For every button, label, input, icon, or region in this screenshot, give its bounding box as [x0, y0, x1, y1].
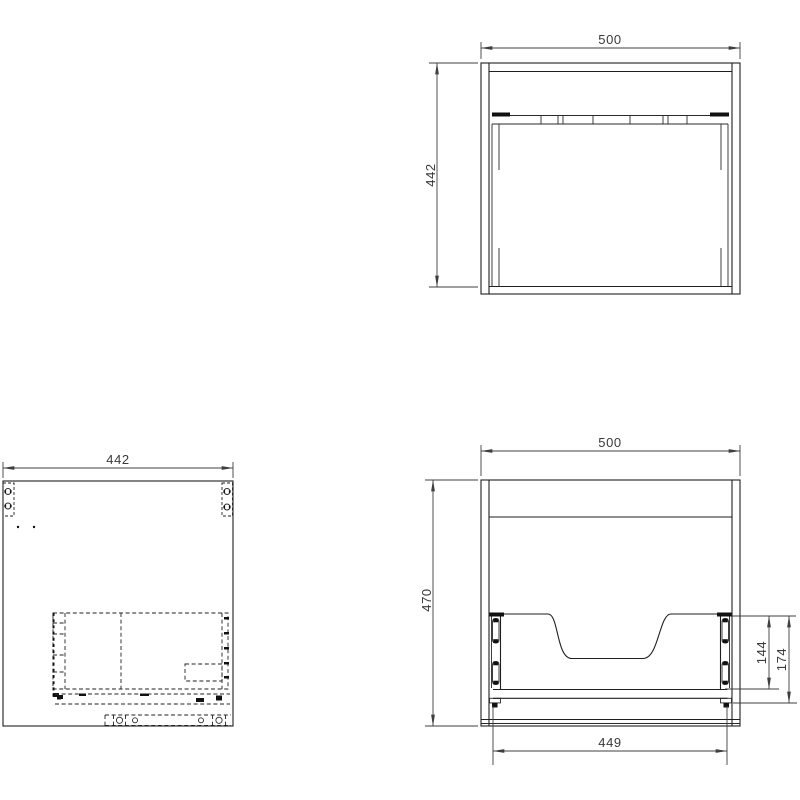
- side-view: 442: [3, 452, 233, 726]
- side-view-depth-label: 442: [106, 452, 130, 467]
- rear-view-height-dimension: 470: [419, 480, 478, 726]
- top-view-carcass: [481, 63, 740, 294]
- rail-end-cap-left: [492, 113, 510, 117]
- pilot-hole-dot: [17, 526, 19, 528]
- top-view-width-dimension: 500: [481, 32, 740, 59]
- rail-end-cap-right: [710, 113, 729, 117]
- drawer-width-label: 449: [598, 735, 622, 750]
- drawer-bottom-rail: [493, 690, 728, 699]
- wall-bracket-front: [3, 483, 14, 516]
- hidden-screw-strip: [105, 715, 231, 726]
- rear-view: 500 470: [419, 435, 797, 765]
- top-view-depth-label: 442: [423, 163, 438, 187]
- wall-bracket-back: [222, 483, 233, 516]
- top-view: 500 442: [423, 32, 740, 294]
- top-view-drawer-box: [492, 113, 729, 288]
- top-view-depth-dimension: 442: [423, 63, 478, 287]
- slide-height-label: 144: [754, 641, 769, 665]
- drawer-slide-left: [490, 613, 505, 708]
- drawer-width-dimension: 449: [493, 706, 727, 765]
- drawer-back-panel: [501, 614, 721, 689]
- hidden-bottom-slide-rail: [55, 694, 230, 705]
- top-view-width-label: 500: [598, 32, 622, 47]
- rear-view-height-label: 470: [419, 588, 434, 612]
- side-view-depth-dimension: 442: [3, 452, 233, 478]
- technical-drawing-page: 500 442: [0, 0, 800, 800]
- rear-view-width-dimension: 500: [481, 435, 740, 476]
- hidden-lock-block: [185, 664, 222, 681]
- rail-height-label: 174: [774, 648, 789, 672]
- plumbing-cutout: [501, 614, 721, 659]
- pilot-hole-dot: [33, 526, 35, 528]
- cabinet-technical-drawing: 500 442: [0, 0, 800, 800]
- hidden-drawer-assembly: [53, 613, 229, 700]
- rail-mounting-ticks: [541, 116, 687, 125]
- rear-view-width-label: 500: [598, 435, 622, 450]
- drawer-slide-right: [717, 613, 732, 708]
